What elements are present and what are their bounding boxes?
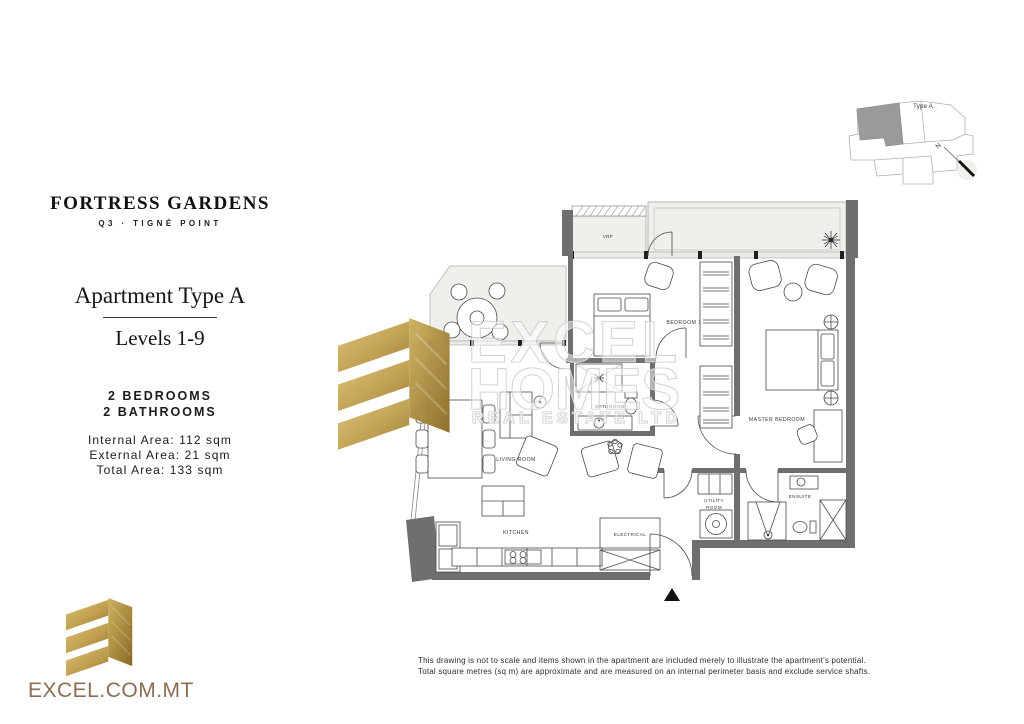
floor-plan-canvas: VRF [0,0,1024,724]
disclaimer-line2: Total square metres (sq m) are approxima… [418,667,870,676]
kitchen-units: KITCHEN [436,522,602,572]
disclaimer-line1: This drawing is not to scale and items s… [418,656,866,665]
electrical-shaft: ELECTRICAL [600,518,660,570]
master-bedroom-furniture: MASTER BEDROOM [747,259,842,462]
room-label-ensuite: ENSUITE [789,494,812,499]
room-label-utility-2: ROOM [706,505,722,510]
balcony [648,202,846,256]
utility-fixtures: UTILITY ROOM [698,474,732,538]
watermark-line3: REAL ESTATE LTD [472,410,677,427]
vrf-room: VRF [572,206,646,254]
room-label-vrf: VRF [603,234,613,239]
footer-logo [66,598,132,676]
room-label-living-room: LIVING ROOM [496,457,536,463]
room-label-utility-1: UTILITY [704,498,724,503]
room-label-kitchen: KITCHEN [503,530,529,536]
key-plan: Type A N [849,101,977,184]
ensuite-fixtures: ENSUITE [748,476,846,540]
room-label-electrical: ELECTRICAL [614,532,646,537]
room-label-master-bedroom: MASTER BEDROOM [749,417,805,423]
brand-website: EXCEL.COM.MT [28,679,194,703]
keyplan-unit-label: Type A [913,103,934,110]
entry-arrow-icon [664,588,680,601]
disclaimer: This drawing is not to scale and items s… [418,656,890,677]
